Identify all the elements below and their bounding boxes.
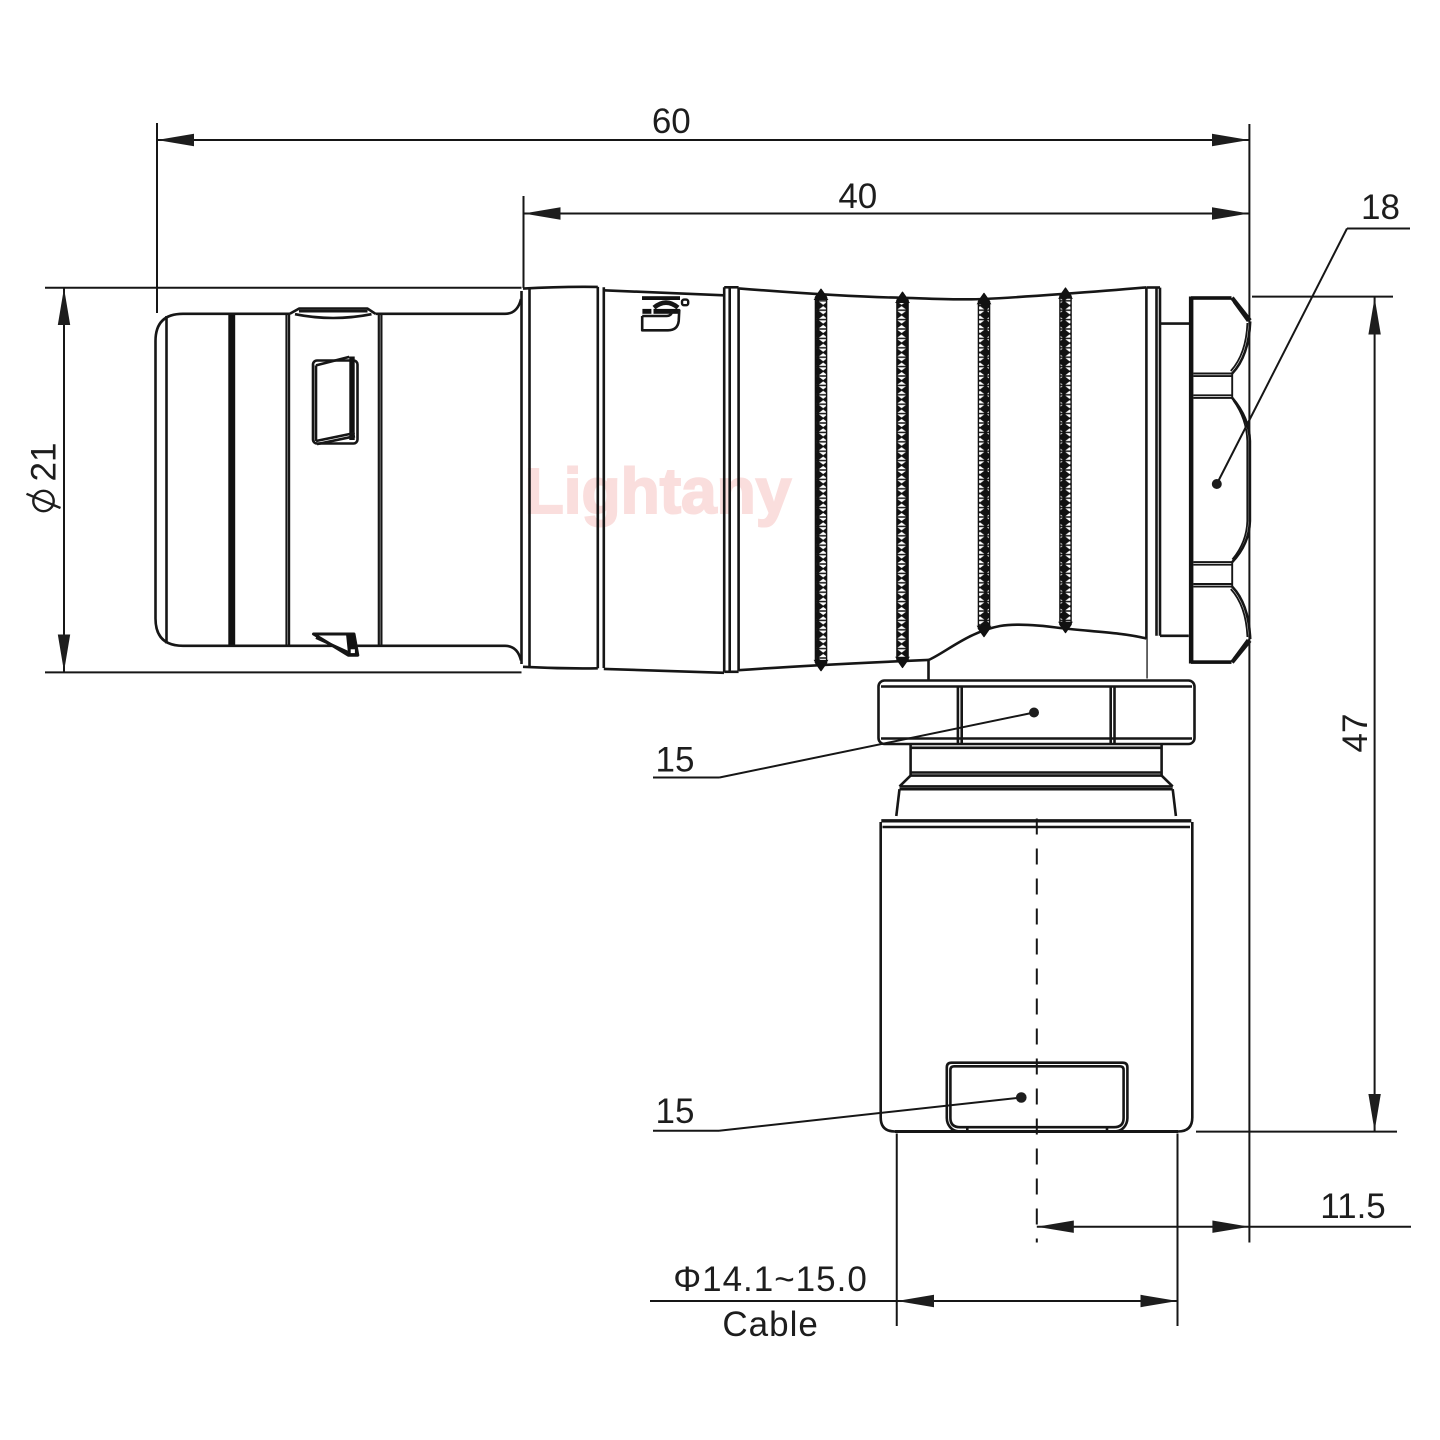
svg-text:15: 15: [656, 741, 695, 780]
svg-text:47: 47: [1336, 714, 1375, 753]
svg-text:Cable: Cable: [722, 1305, 818, 1344]
svg-text:11.5: 11.5: [1320, 1187, 1386, 1226]
svg-text:60: 60: [652, 102, 691, 141]
svg-text:18: 18: [1361, 188, 1400, 227]
svg-text:Lightany: Lightany: [525, 455, 792, 527]
svg-text:15: 15: [656, 1092, 695, 1131]
svg-text:Φ14.1~15.0: Φ14.1~15.0: [673, 1260, 868, 1299]
svg-text:40: 40: [838, 177, 877, 216]
svg-text:21: 21: [25, 443, 64, 482]
